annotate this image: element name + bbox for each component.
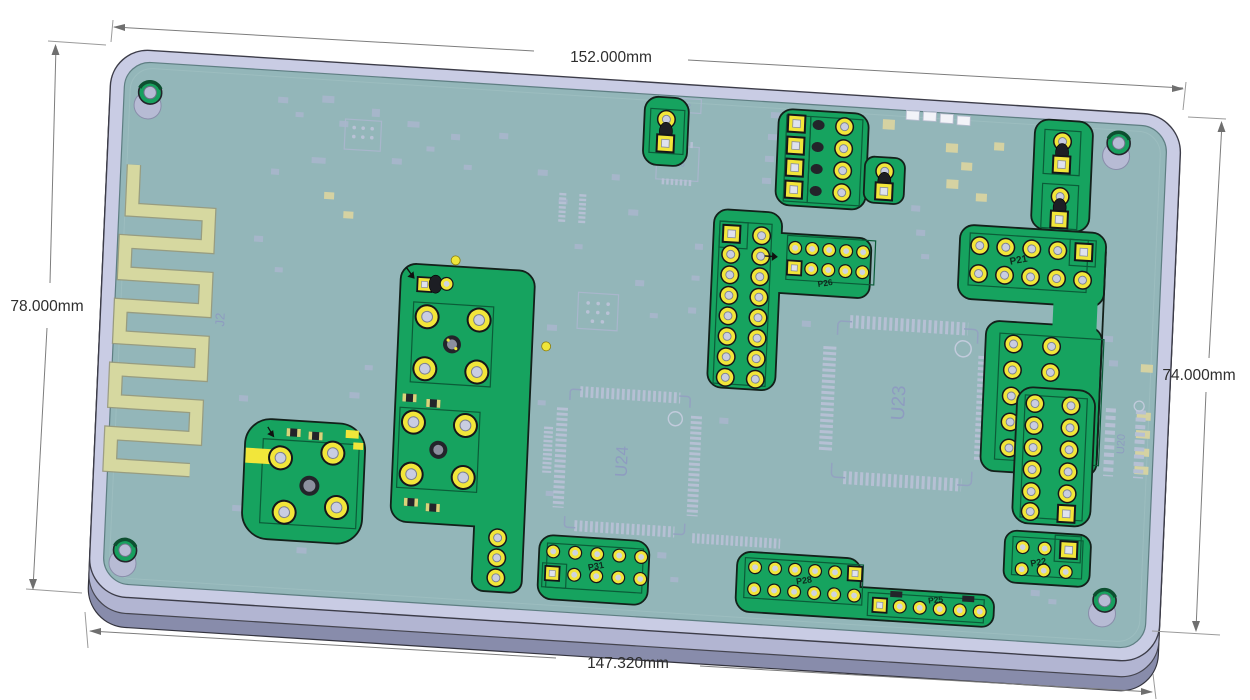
connector-island-rf[interactable]: [241, 418, 366, 546]
connector-island-p22[interactable]: P22: [1003, 530, 1091, 587]
dimension-top-label[interactable]: 152.000mm: [570, 49, 652, 66]
u24-ref-label: U24: [612, 445, 632, 477]
u23-ref-label: U23: [888, 385, 910, 421]
dimension-right-label[interactable]: 74.000mm: [1162, 367, 1235, 384]
cad-viewport: J2: [0, 0, 1250, 700]
connector-island-right-column[interactable]: [1012, 386, 1096, 527]
p25-ref-label: P25: [927, 594, 944, 606]
dimension-left-label[interactable]: 78.000mm: [10, 298, 83, 315]
connector-island-jumper-strip[interactable]: [1031, 119, 1094, 233]
connector-island-top-center[interactable]: [642, 96, 689, 167]
pcb-board-assembly[interactable]: J2: [87, 48, 1182, 693]
u20-ref-label: U20: [1115, 434, 1128, 455]
connector-island-p31[interactable]: P31: [537, 534, 650, 605]
dimension-bottom-label[interactable]: 147.320mm: [587, 655, 669, 672]
edge-pad: [245, 448, 272, 465]
antenna-ref-label: J2: [212, 312, 228, 327]
